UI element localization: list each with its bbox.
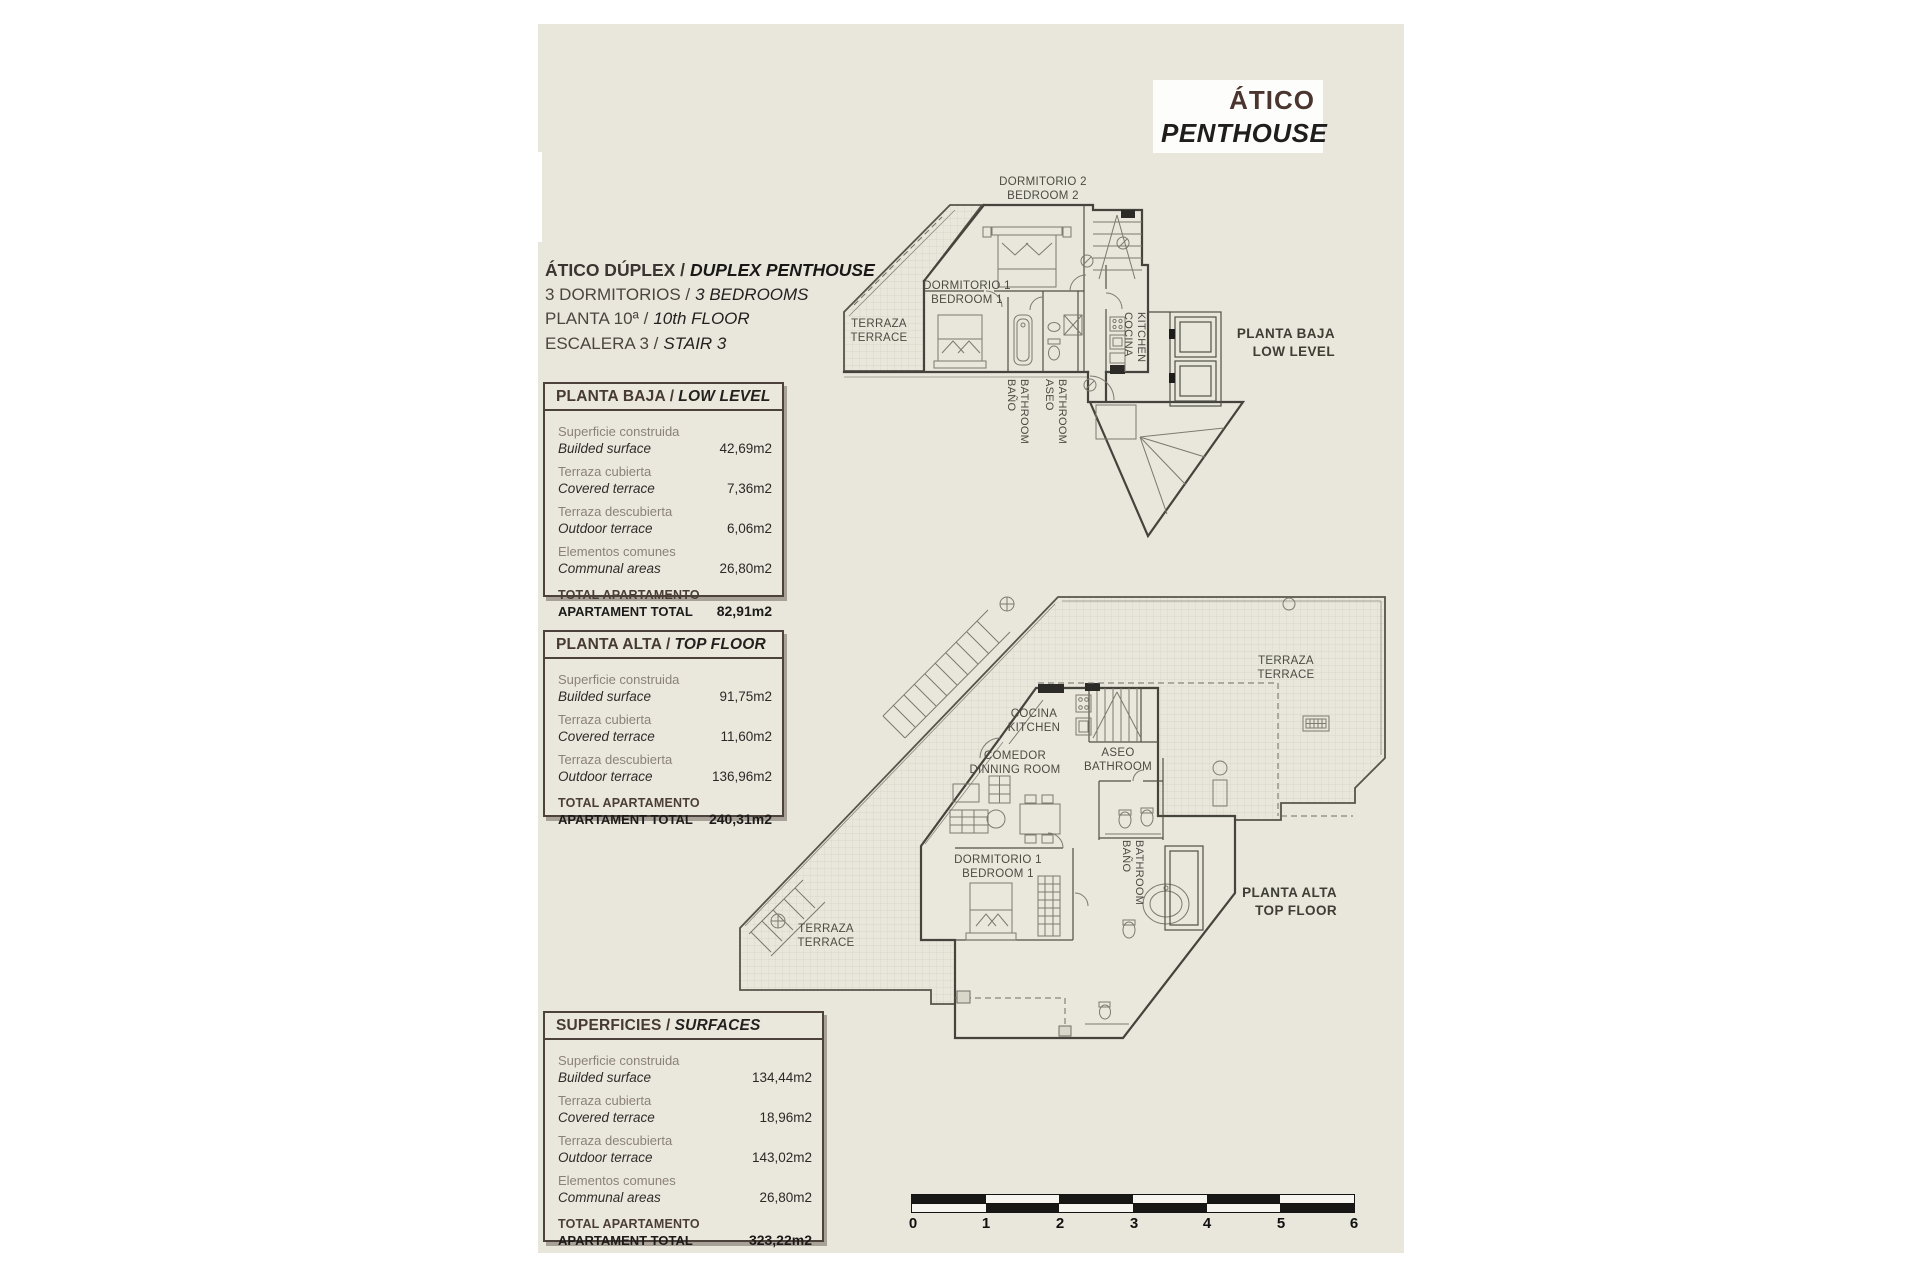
caption-low-level: PLANTA BAJA LOW LEVEL [1215,325,1335,361]
label-aseo-vertical: ASEO BATHROOM [1042,379,1068,444]
bathtub-icon [1014,315,1032,365]
label-kitchen-vertical: COCINA KITCHEN [1121,312,1147,362]
label-bedroom2: DORMITORIO 2 BEDROOM 2 [963,175,1123,203]
label-bedroom1: DORMITORIO 1 BEDROOM 1 [897,279,1037,307]
label-terrace-lower: TERRAZA TERRACE [766,922,886,950]
label-kitchen: COCINA KITCHEN [984,707,1084,735]
elevators [1148,312,1221,406]
canvas: ÁTICO PENTHOUSE ÁTICO DÚPLEX /DUPLEX PEN… [0,0,1920,1280]
label-bath-vertical: BAÑO BATHROOM [1004,379,1030,444]
label-bedroom1: DORMITORIO 1 BEDROOM 1 [918,853,1078,881]
label-terrace-upper: TERRAZA TERRACE [1226,654,1346,682]
floorplan-low-level [838,169,1373,569]
sheet-edge-notch [538,152,542,242]
bed-single-icon [934,315,986,368]
scale-tick-0: 0 [906,1215,920,1232]
title-penthouse: PENTHOUSE [1161,116,1315,150]
table-row: Terraza descubierta Outdoor terrace6,06m… [558,504,772,537]
bed-double-icon [983,227,1071,287]
plan-top-floor-drawing: TERRAZA TERRACE COCINA KITCHEN COMEDOR D… [733,588,1413,1063]
scale-tick-3: 3 [1127,1215,1141,1232]
title-box: ÁTICO PENTHOUSE [1153,80,1323,153]
table-total-row: TOTAL APARTAMENTO APARTAMENT TOTAL323,22… [558,1216,812,1249]
scale-tick-5: 5 [1274,1215,1288,1232]
scale-tick-2: 2 [1053,1215,1067,1232]
label-aseo: ASEO BATHROOM [1068,746,1168,774]
label-bath-vertical: BAÑO BATHROOM [1119,840,1145,905]
table-row: Terraza cubierta Covered terrace7,36m2 [558,464,772,497]
table-low-level-header: PLANTA BAJA /LOW LEVEL [545,384,782,411]
scale-bar [911,1194,1355,1213]
table-row: Terraza cubierta Covered terrace18,96m2 [558,1093,812,1126]
plan-low-level-drawing: DORMITORIO 2 BEDROOM 2 DORMITORIO 1 BEDR… [838,169,1373,569]
table-row: Elementos comunes Communal areas26,80m2 [558,1173,812,1206]
scale-tick-1: 1 [979,1215,993,1232]
table-row: Superficie construida Builded surface42,… [558,424,772,457]
scale-tick-4: 4 [1200,1215,1214,1232]
title-atico: ÁTICO [1161,84,1315,116]
label-terrace: TERRAZA TERRACE [838,317,920,345]
plan-sheet: ÁTICO PENTHOUSE ÁTICO DÚPLEX /DUPLEX PEN… [538,24,1404,1253]
table-low-level: PLANTA BAJA /LOW LEVEL Superficie constr… [543,382,784,597]
scale-tick-6: 6 [1347,1215,1361,1232]
toilet-sink-shower-icons [1048,315,1082,360]
table-row: Terraza descubierta Outdoor terrace143,0… [558,1133,812,1166]
caption-top-floor: PLANTA ALTA TOP FLOOR [1207,884,1337,920]
table-row: Elementos comunes Communal areas26,80m2 [558,544,772,577]
